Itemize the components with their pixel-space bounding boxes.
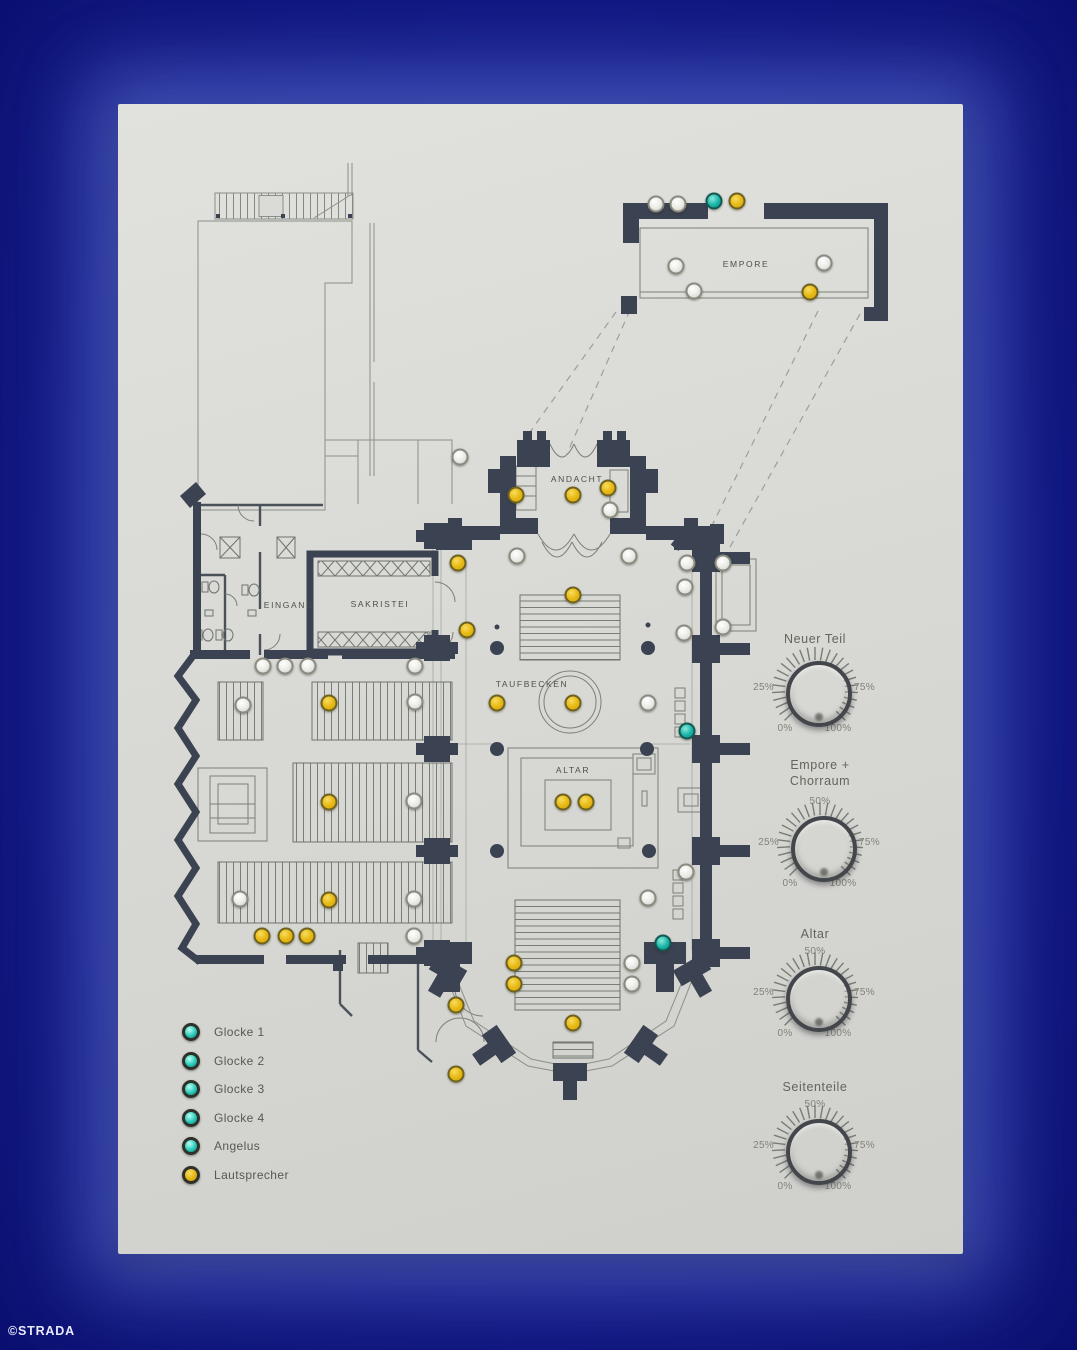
led-white	[624, 955, 641, 972]
led-teal	[706, 193, 723, 210]
led-yellow	[321, 794, 338, 811]
led-yellow	[299, 928, 316, 945]
knob-seitenteile[interactable]: Seitenteile 50% 25% 75% 0% 100%	[730, 1048, 900, 1218]
led-white	[406, 891, 423, 908]
knob-dial[interactable]	[786, 1119, 852, 1185]
led-white	[407, 658, 424, 675]
led-white	[668, 258, 685, 275]
legend-item-glocke4: Glocke 4	[182, 1110, 289, 1126]
led-white	[677, 579, 694, 596]
knob-altar[interactable]: Altar 50% 25% 75% 0% 100%	[730, 895, 900, 1065]
led-yellow	[254, 928, 271, 945]
led-yellow	[489, 695, 506, 712]
led-white	[715, 619, 732, 636]
led-white	[670, 196, 687, 213]
legend-label: Lautsprecher	[214, 1168, 289, 1182]
led-white	[640, 890, 657, 907]
led-white	[277, 658, 294, 675]
knob-neuer-teil[interactable]: Neuer Teil 25% 75% 0% 100%	[730, 590, 900, 760]
led-white	[509, 548, 526, 565]
led-white	[300, 658, 317, 675]
led-yellow	[448, 1066, 465, 1083]
led-yellow	[450, 555, 467, 572]
led-yellow	[555, 794, 572, 811]
legend-label: Angelus	[214, 1139, 260, 1153]
lautsprecher-led-icon	[182, 1166, 200, 1184]
legend-label: Glocke 4	[214, 1111, 265, 1125]
led-yellow	[321, 892, 338, 909]
led-yellow	[565, 1015, 582, 1032]
led-white	[648, 196, 665, 213]
knob-dial[interactable]	[786, 661, 852, 727]
glocke3-led-icon	[182, 1080, 200, 1098]
led-white	[676, 625, 693, 642]
led-teal	[655, 935, 672, 952]
led-teal	[679, 723, 696, 740]
legend: Glocke 1 Glocke 2 Glocke 3 Glocke 4 Ange…	[182, 1024, 289, 1195]
led-yellow	[448, 997, 465, 1014]
led-yellow	[600, 480, 617, 497]
control-panel: EMPORE ANDACHT EINGANG SAKRISTEI TAUFBEC…	[118, 104, 963, 1254]
led-yellow	[578, 794, 595, 811]
led-white	[406, 793, 423, 810]
led-white	[686, 283, 703, 300]
led-yellow	[506, 976, 523, 993]
led-white	[255, 658, 272, 675]
knob-dial[interactable]	[791, 816, 857, 882]
legend-item-lautsprecher: Lautsprecher	[182, 1167, 289, 1183]
led-yellow	[565, 695, 582, 712]
glocke1-led-icon	[182, 1023, 200, 1041]
led-white	[640, 695, 657, 712]
legend-label: Glocke 2	[214, 1054, 265, 1068]
led-white	[232, 891, 249, 908]
glocke4-led-icon	[182, 1109, 200, 1127]
led-yellow	[459, 622, 476, 639]
led-white	[679, 555, 696, 572]
led-yellow	[278, 928, 295, 945]
led-white	[235, 697, 252, 714]
legend-item-glocke2: Glocke 2	[182, 1053, 289, 1069]
led-white	[452, 449, 469, 466]
led-white	[621, 548, 638, 565]
legend-label: Glocke 3	[214, 1082, 265, 1096]
legend-item-angelus: Angelus	[182, 1138, 289, 1154]
led-yellow	[802, 284, 819, 301]
led-yellow	[506, 955, 523, 972]
legend-label: Glocke 1	[214, 1025, 265, 1039]
led-white	[816, 255, 833, 272]
knob-dial[interactable]	[786, 966, 852, 1032]
knob-empore-chorraum[interactable]: Empore + Chorraum 50% 25% 75% 0% 100%	[735, 745, 905, 915]
led-yellow	[565, 487, 582, 504]
led-white	[715, 555, 732, 572]
angelus-led-icon	[182, 1137, 200, 1155]
led-white	[407, 694, 424, 711]
led-yellow	[321, 695, 338, 712]
led-white	[406, 928, 423, 945]
knob-title: Empore +	[735, 758, 905, 772]
led-white	[678, 864, 695, 881]
led-white	[624, 976, 641, 993]
led-yellow	[565, 587, 582, 604]
led-yellow	[729, 193, 746, 210]
glocke2-led-icon	[182, 1052, 200, 1070]
led-white	[602, 502, 619, 519]
legend-item-glocke3: Glocke 3	[182, 1081, 289, 1097]
legend-item-glocke1: Glocke 1	[182, 1024, 289, 1040]
led-yellow	[508, 487, 525, 504]
watermark: ©STRADA	[8, 1324, 75, 1338]
